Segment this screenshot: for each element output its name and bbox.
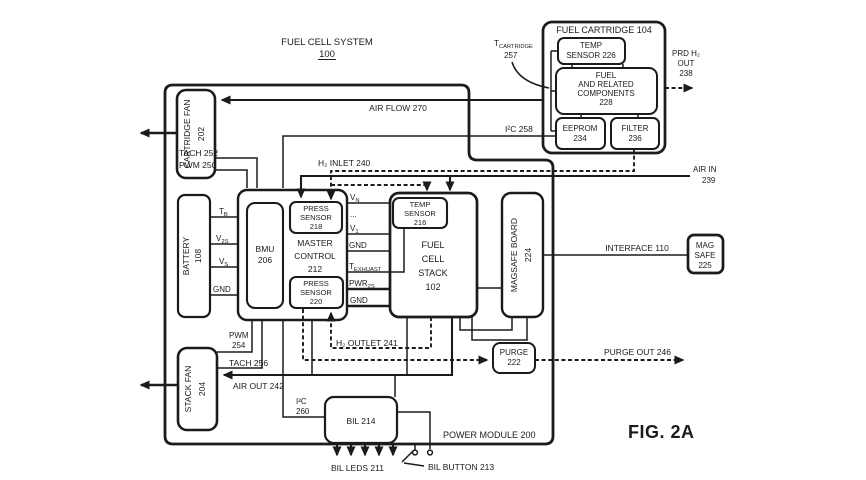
press-220-l1: PRESS: [303, 279, 328, 288]
press-220-l2: SENSOR: [300, 288, 332, 297]
bmu-l2: 206: [258, 255, 272, 265]
power-module-label: POWER MODULE 200: [443, 430, 536, 440]
fuel-components-l3: COMPONENTS: [577, 89, 634, 98]
interface-110-label: INTERFACE 110: [605, 243, 669, 253]
system-title: FUEL CELL SYSTEM: [281, 37, 373, 48]
prd-h2-l1: PRD H₂: [672, 49, 700, 58]
patent-figure-2a: FUEL CELL SYSTEM 100 FUEL CARTRIDGE 104 …: [0, 0, 866, 480]
gnd-stack-2-label: GND: [350, 296, 368, 305]
bil-button-label: BIL BUTTON 213: [428, 462, 494, 472]
fuel-components-l4: 228: [599, 98, 613, 107]
stack-l3: STACK: [418, 268, 447, 278]
temp-216-l1: TEMP: [410, 200, 431, 209]
filter-l2: 236: [628, 134, 642, 143]
system-number: 100: [319, 49, 335, 60]
air-in-l1: AIR IN: [693, 165, 717, 174]
master-control-l3: 212: [308, 264, 322, 274]
i2c-260-l2: 260: [296, 407, 310, 416]
stack-l2: CELL: [422, 254, 445, 264]
i2c-258-label: I²C 258: [505, 124, 533, 134]
gnd-battery-label: GND: [213, 285, 231, 294]
magsafe-board-name: MAGSAFE BOARD: [509, 218, 519, 292]
bil-leds-label: BIL LEDS 211: [331, 463, 384, 473]
pwm-254-l2: 254: [232, 341, 246, 350]
prd-h2-l2: OUT: [678, 59, 695, 68]
battery-name: BATTERY: [181, 236, 191, 275]
stack-l1: FUEL: [421, 240, 444, 250]
tach-256-label: TACH 256: [229, 358, 268, 368]
dots-label: ...: [350, 210, 357, 219]
mag-safe-l1: MAG: [696, 241, 714, 250]
press-218-l2: SENSOR: [300, 213, 332, 222]
i2c-260-l1: I²C: [296, 397, 307, 406]
prd-h2-l3: 238: [679, 69, 693, 78]
press-220-l3: 220: [310, 297, 323, 306]
air-flow-label: AIR FLOW 270: [369, 103, 427, 113]
master-control-l1: MASTER: [297, 238, 332, 248]
temp-sensor-226-l2: SENSOR 226: [566, 51, 616, 60]
bil-button-terminal-right: [428, 450, 433, 455]
press-218-l1: PRESS: [303, 204, 328, 213]
bil-button-terminal-left: [413, 450, 418, 455]
cartridge-fan-name: CARTRIDGE FAN: [182, 100, 192, 169]
purge-l2: 222: [507, 358, 521, 367]
t-cartridge-num: 257: [504, 51, 518, 60]
fuel-cartridge-title: FUEL CARTRIDGE 104: [556, 25, 652, 35]
master-control-l2: CONTROL: [294, 251, 336, 261]
stack-l4: 102: [425, 282, 440, 292]
gnd-stack-1-label: GND: [349, 241, 367, 250]
filter-l1: FILTER: [622, 124, 649, 133]
mag-safe-l2: SAFE: [695, 251, 716, 260]
fuel-components-l2: AND RELATED: [578, 80, 634, 89]
h2-inlet-label: H₂ INLET 240: [318, 158, 371, 168]
pwm-254-l1: PWM: [229, 331, 249, 340]
eeprom-l2: 234: [573, 134, 587, 143]
h2-outlet-label: H₂ OUTLET 241: [336, 338, 398, 348]
temp-sensor-226-l1: TEMP: [580, 41, 602, 50]
air-in-l2: 239: [702, 176, 716, 185]
bmu-l1: BMU: [256, 244, 275, 254]
stack-fan-name: STACK FAN: [183, 366, 193, 413]
mag-safe-l3: 225: [698, 261, 712, 270]
figure-label: FIG. 2A: [628, 422, 695, 442]
stack-fan-num: 204: [197, 382, 207, 396]
press-218-l3: 218: [310, 222, 323, 231]
cartridge-fan-num: 202: [196, 127, 206, 141]
temp-216-l3: 216: [414, 218, 427, 227]
diagram-canvas: FUEL CELL SYSTEM 100 FUEL CARTRIDGE 104 …: [0, 0, 866, 480]
fuel-components-l1: FUEL: [596, 71, 617, 80]
temp-216-l2: SENSOR: [404, 209, 436, 218]
bil-label: BIL 214: [347, 416, 376, 426]
battery-num: 108: [193, 249, 203, 263]
air-out-label: AIR OUT 242: [233, 381, 284, 391]
eeprom-l1: EEPROM: [563, 124, 598, 133]
magsafe-board-num: 224: [523, 248, 533, 262]
purge-out-label: PURGE OUT 246: [604, 347, 671, 357]
purge-l1: PURGE: [500, 348, 528, 357]
